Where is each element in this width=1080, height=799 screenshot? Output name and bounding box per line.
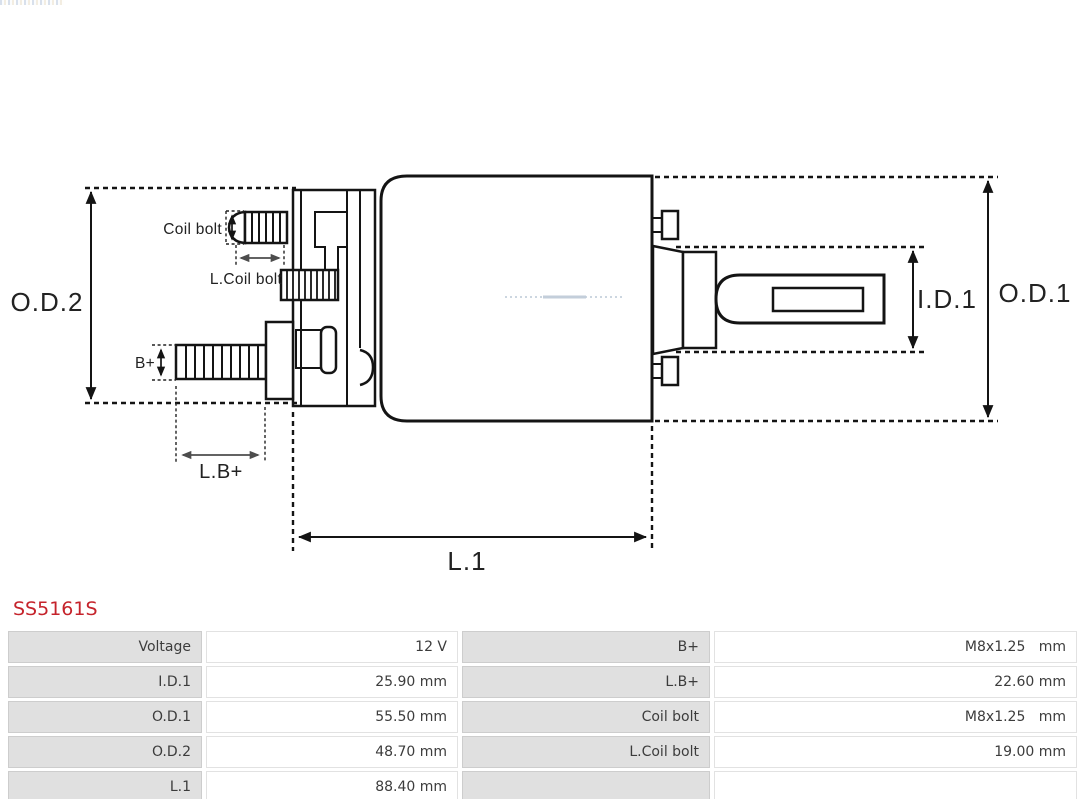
spec-label	[462, 771, 710, 799]
spec-label: I.D.1	[8, 666, 202, 698]
main-cylinder-drawing	[381, 176, 652, 421]
spec-label: Voltage	[8, 631, 202, 663]
table-row: L.1 88.40 mm	[8, 771, 1077, 799]
part-number: SS5161S	[13, 598, 98, 620]
table-row: I.D.1 25.90 mm L.B+ 22.60 mm	[8, 666, 1077, 698]
table-row: Voltage 12 V B+ M8x1.25 mm	[8, 631, 1077, 663]
dimension-l-coil-bolt: L.Coil bolt	[210, 245, 284, 288]
coil-bolt-label: Coil bolt	[163, 221, 222, 238]
solenoid-body-group	[176, 176, 884, 421]
l1-label: L.1	[447, 546, 486, 576]
spec-label: B+	[462, 631, 710, 663]
spec-table: Voltage 12 V B+ M8x1.25 mm I.D.1 25.90 m…	[4, 628, 1080, 799]
spec-label: O.D.2	[8, 736, 202, 768]
table-row: O.D.2 48.70 mm L.Coil bolt 19.00 mm	[8, 736, 1077, 768]
od2-label: O.D.2	[11, 287, 84, 317]
spec-label: O.D.1	[8, 701, 202, 733]
spec-value: 19.00 mm	[714, 736, 1077, 768]
spec-value	[714, 771, 1077, 799]
b-plus-label: B+	[135, 355, 155, 372]
dimension-l1: L.1	[293, 412, 652, 576]
spec-value: 12 V	[206, 631, 458, 663]
spec-value: 55.50 mm	[206, 701, 458, 733]
spec-value: M8x1.25 mm	[714, 631, 1077, 663]
l-coil-bolt-label: L.Coil bolt	[210, 271, 283, 288]
coil-bolt-drawing	[229, 212, 287, 243]
lb-plus-label: L.B+	[199, 461, 243, 483]
spec-value: 22.60 mm	[714, 666, 1077, 698]
spec-value: M8x1.25 mm	[714, 701, 1077, 733]
spec-value: 88.40 mm	[206, 771, 458, 799]
spec-label: Coil bolt	[462, 701, 710, 733]
dimension-coil-bolt: Coil bolt	[163, 211, 244, 244]
plunger-drawing	[653, 246, 884, 354]
spec-label: L.1	[8, 771, 202, 799]
od1-label: O.D.1	[999, 278, 1072, 308]
dimension-b-plus: B+	[135, 345, 176, 380]
id1-label: I.D.1	[917, 284, 977, 314]
spec-value: 48.70 mm	[206, 736, 458, 768]
catalog-page: O.D.2 O.D.1 I.D.1 L.1 L.B+	[0, 0, 1080, 799]
spec-label: L.Coil bolt	[462, 736, 710, 768]
solenoid-technical-drawing: O.D.2 O.D.1 I.D.1 L.1 L.B+	[0, 0, 1080, 592]
spec-label: L.B+	[462, 666, 710, 698]
table-row: O.D.1 55.50 mm Coil bolt M8x1.25 mm	[8, 701, 1077, 733]
spec-value: 25.90 mm	[206, 666, 458, 698]
dimension-lb-plus: L.B+	[176, 386, 265, 483]
